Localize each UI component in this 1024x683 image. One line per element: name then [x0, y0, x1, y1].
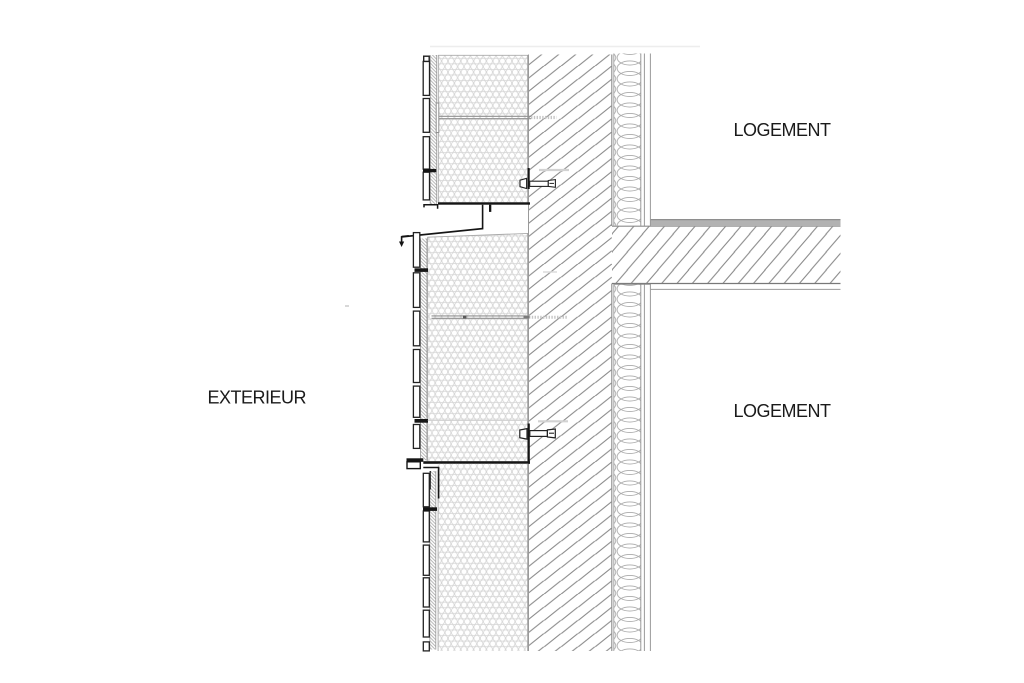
svg-text:LOGEMENT: LOGEMENT	[734, 401, 832, 421]
svg-text:LOGEMENT: LOGEMENT	[734, 120, 832, 140]
svg-text:EXTERIEUR: EXTERIEUR	[208, 388, 307, 408]
